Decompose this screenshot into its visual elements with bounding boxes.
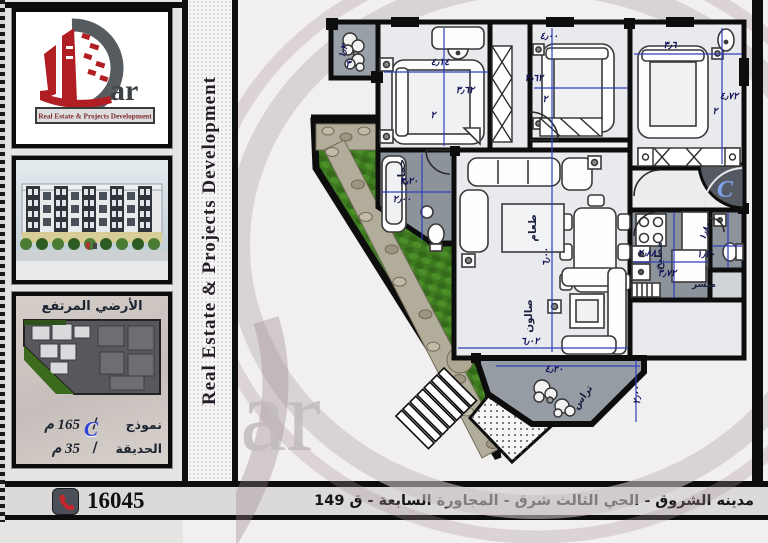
svg-text:٤٫٠٠: ٤٫٠٠ (540, 31, 558, 42)
svg-text:٣٫٦٢: ٣٫٦٢ (525, 73, 545, 84)
unit-letter-badge: C (84, 417, 98, 442)
site-plan-title: الأرضي المرتفع (16, 296, 168, 314)
left-film-strip (0, 0, 5, 522)
site-plan-panel: الأرضي المرتفع نموذج / 165 م (12, 292, 172, 468)
svg-text:٣٫٦: ٣٫٦ (663, 40, 677, 51)
hotline: 16045 (52, 488, 145, 515)
floor-plan: حمامطعامصالونمطبخمنشرتراس٤٫١٤٣٫٦٢٢٤٫٠٠٣٫… (236, 0, 768, 483)
building-rendering (16, 160, 168, 280)
phone-icon (52, 488, 79, 515)
svg-text:C: C (717, 177, 734, 203)
model-value: 165 م (44, 415, 80, 434)
svg-text:٤٫٧٢: ٤٫٧٢ (720, 91, 740, 102)
svg-text:١٫٢٠: ١٫٢٠ (697, 249, 715, 260)
logo-latin-text: ar (110, 74, 138, 107)
model-label: نموذج (110, 417, 162, 432)
pedestrian (86, 242, 90, 249)
phone-number: 16045 (87, 488, 145, 514)
poster: ar Real Estate & Projects Development (0, 0, 768, 543)
svg-text:٤٫١٤: ٤٫١٤ (431, 57, 450, 68)
footer-bar: 16045 مدينه الشروق - الحي الثالث شرق - ا… (0, 481, 768, 520)
top-frame-line (0, 2, 182, 8)
garden-label: الحديقة (110, 441, 162, 456)
svg-text:٣٫٦٢: ٣٫٦٢ (456, 85, 476, 96)
sofa-living (468, 158, 560, 186)
salon-extension (630, 300, 744, 358)
vertical-banner: Real Estate & Projects Development (182, 0, 238, 481)
svg-text:صالون: صالون (523, 299, 535, 333)
right-frame-border (752, 0, 763, 481)
garden-separator: / (80, 440, 110, 456)
pedestrian-2 (93, 243, 97, 249)
vertical-banner-text: Real Estate & Projects Development (199, 76, 221, 405)
svg-text:منشر: منشر (691, 280, 716, 290)
svg-text:طعام: طعام (527, 214, 539, 242)
svg-text:٦٫٠٠: ٦٫٠٠ (541, 248, 552, 266)
svg-text:٢٫٨٨: ٢٫٨٨ (638, 248, 657, 259)
road (16, 250, 168, 262)
address-text: مدينه الشروق - الحي الثالث شرق - المجاور… (314, 493, 768, 509)
phone-handset-icon (57, 493, 74, 510)
svg-text:٣٫٢٠: ٣٫٢٠ (400, 176, 418, 187)
sofa-side (460, 190, 488, 252)
svg-text:٢٫٠٠: ٢٫٠٠ (393, 194, 411, 205)
dar-logo: ar Real Estate & Projects Development (16, 12, 168, 144)
garden-value: 35 م (52, 439, 80, 458)
svg-text:٦٫٠٢: ٦٫٠٢ (521, 336, 541, 347)
svg-text:٤٫٢٠: ٤٫٢٠ (545, 364, 563, 375)
site-plan-map (16, 314, 168, 412)
logo-tagline: Real Estate & Projects Development (38, 112, 152, 121)
site-garden-strip (24, 320, 66, 325)
salon-sofa-bottom (562, 336, 616, 354)
svg-text:٢٫٠٠: ٢٫٠٠ (632, 386, 643, 404)
logo-panel: ar Real Estate & Projects Development (12, 8, 172, 148)
foreground (16, 261, 168, 280)
svg-text:٣٫٧٢: ٣٫٧٢ (658, 268, 678, 279)
bath-sink (421, 206, 433, 218)
building-photo-panel (12, 156, 172, 284)
toilet (428, 224, 444, 244)
